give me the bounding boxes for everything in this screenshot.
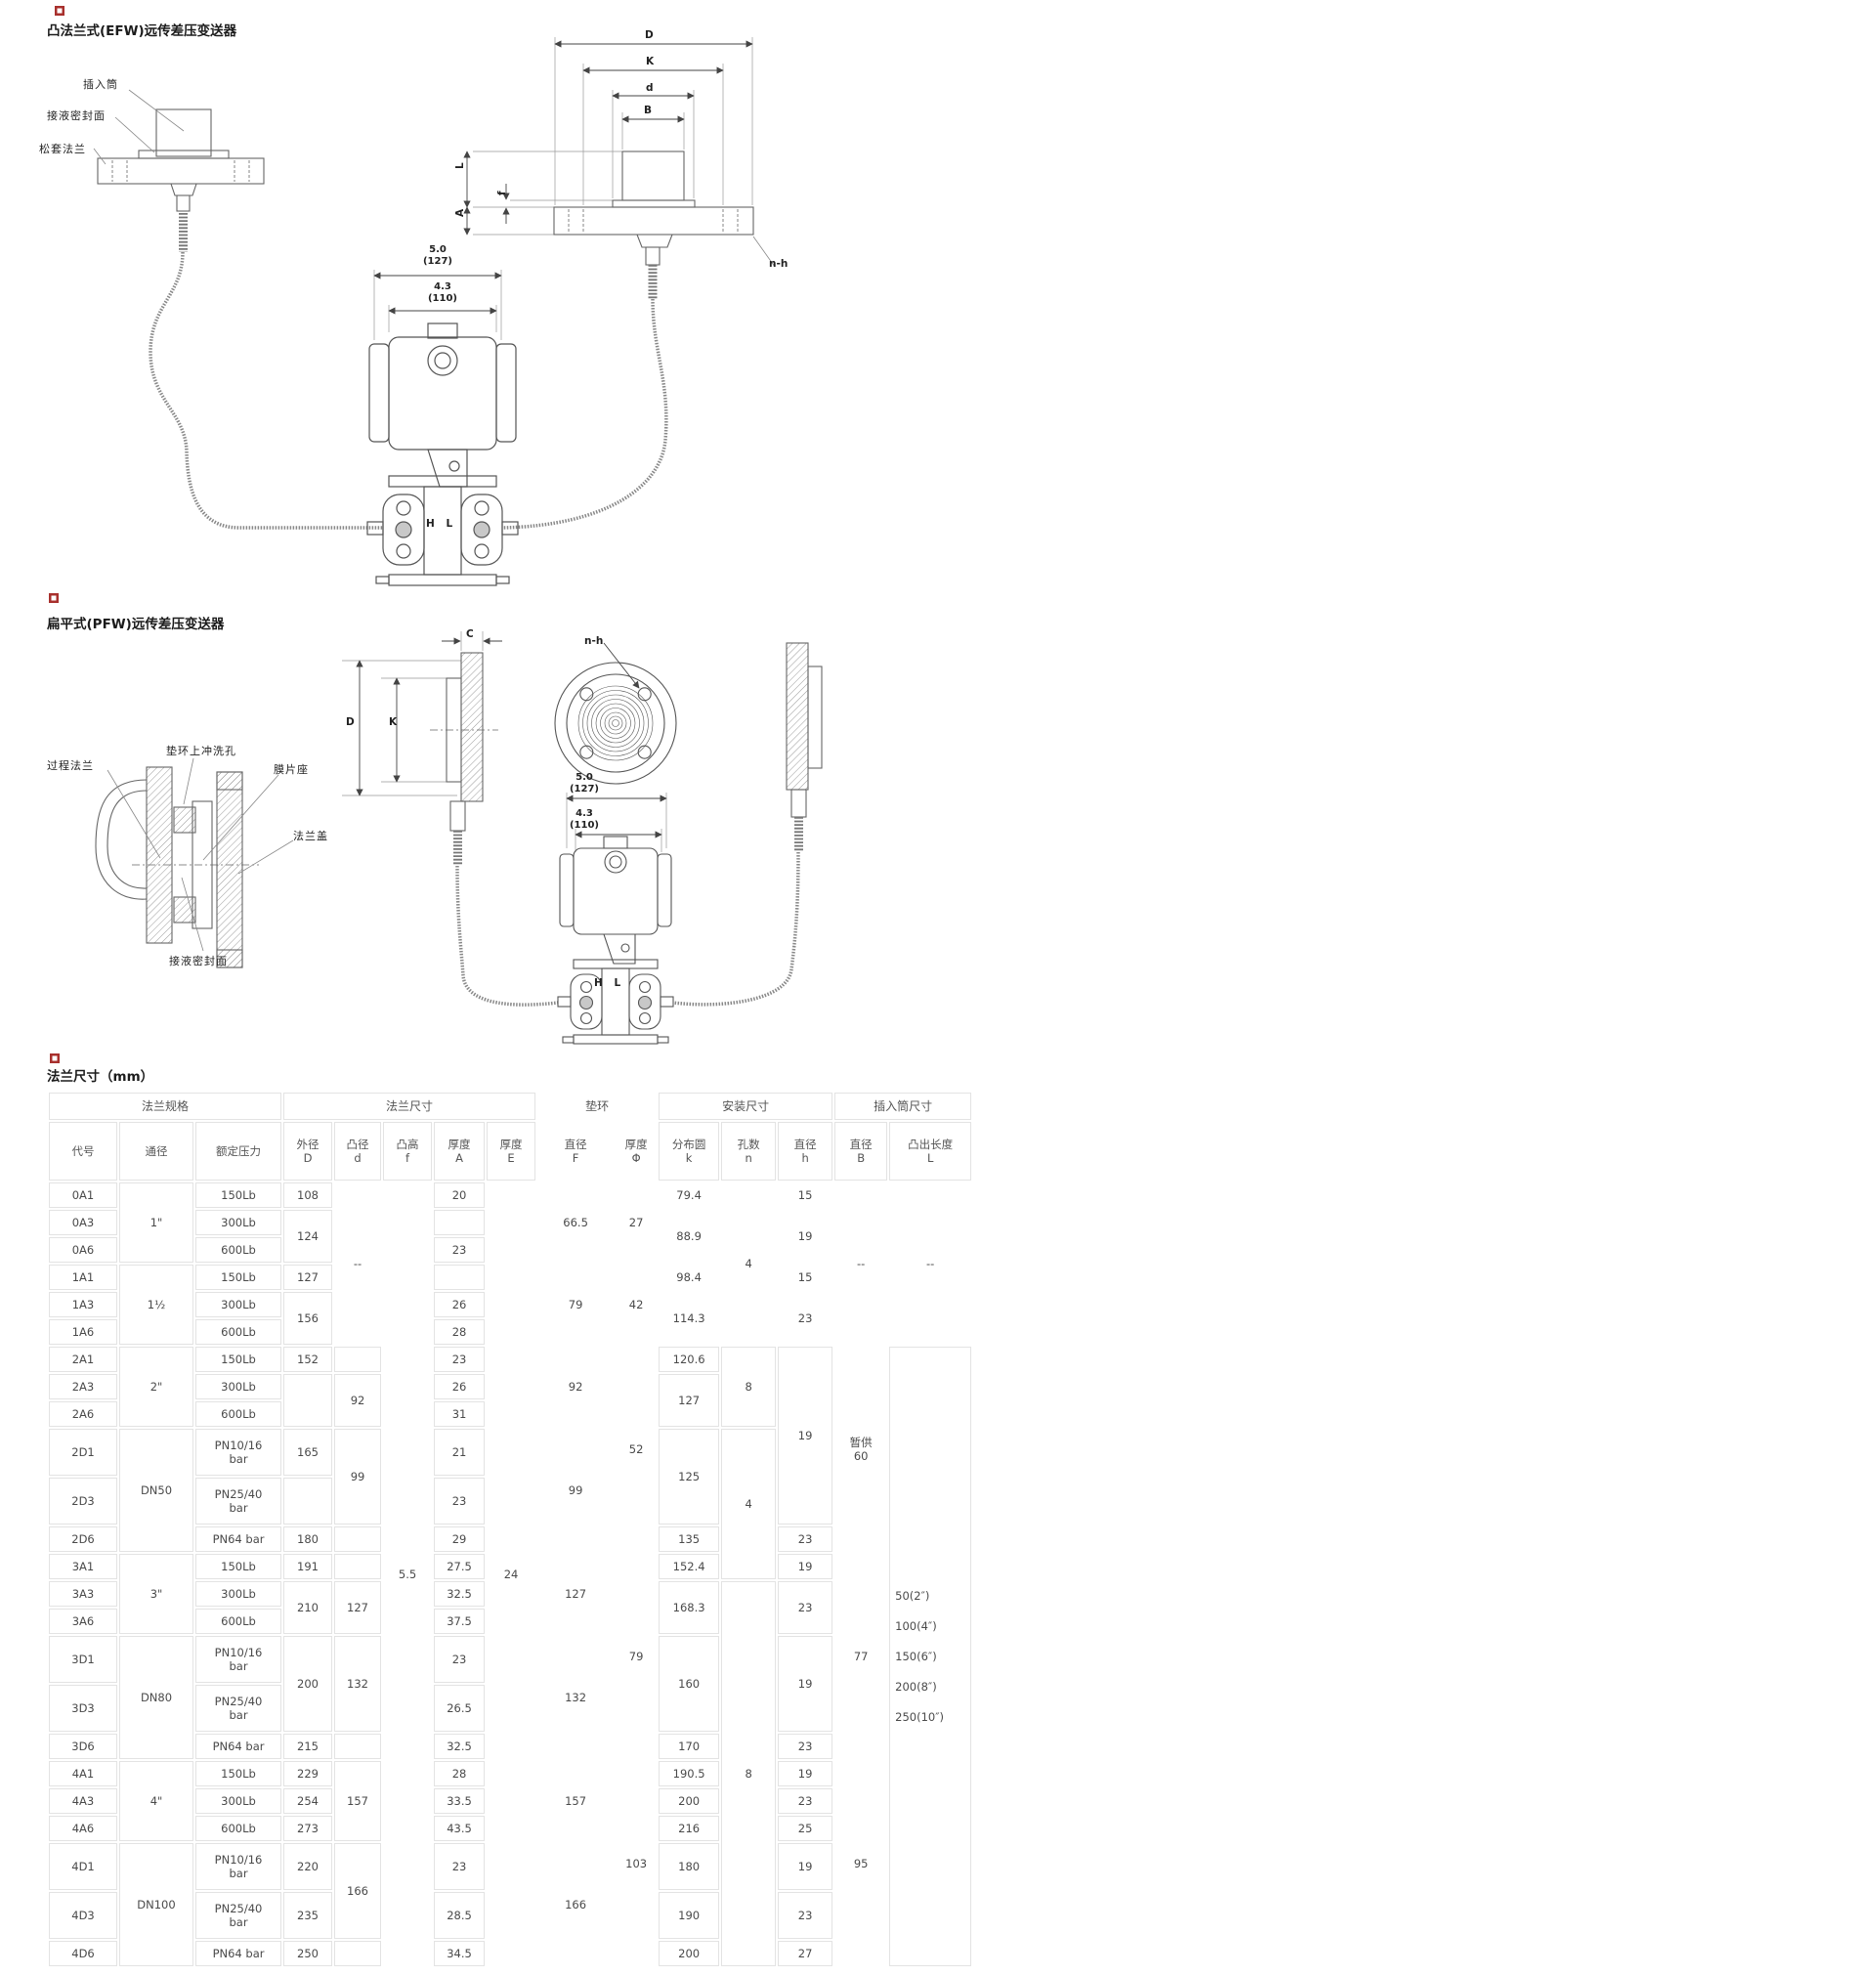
header-cell: 凸高 f xyxy=(383,1122,432,1181)
table-cell: 152 xyxy=(283,1347,332,1372)
table-cell xyxy=(434,1210,485,1235)
header-cell: 通径 xyxy=(119,1122,193,1181)
table-cell xyxy=(334,1941,381,1966)
table-cell: 200 xyxy=(659,1788,719,1814)
table-cell: 27 xyxy=(616,1182,657,1263)
table-cell: 26 xyxy=(434,1374,485,1399)
table-cell: 33.5 xyxy=(434,1788,485,1814)
header-cell: 外径 D xyxy=(283,1122,332,1181)
dim-label-L: L xyxy=(454,162,466,169)
table-cell: 52 xyxy=(616,1347,657,1552)
table-cell: 132 xyxy=(334,1636,381,1732)
table-cell: PN10/16 bar xyxy=(195,1429,281,1476)
table-cell: 8 xyxy=(721,1581,776,1966)
table-cell: 28 xyxy=(434,1761,485,1786)
table-cell: 229 xyxy=(283,1761,332,1786)
header-cell: 安装尺寸 xyxy=(659,1093,832,1120)
pfw-callout-flush-hole: 垫环上冲洗孔 xyxy=(166,743,236,758)
header-cell: 孔数 n xyxy=(721,1122,776,1181)
efw-dimension-view xyxy=(467,37,775,528)
table-cell: 250 xyxy=(283,1941,332,1966)
table-cell: PN25/40 bar xyxy=(195,1892,281,1939)
flange-dimensions-table: 法兰规格法兰尺寸垫环安装尺寸插入筒尺寸代号通径额定压力外径 D凸径 d凸高 f厚… xyxy=(47,1091,973,1968)
table-cell: 4 xyxy=(721,1182,776,1345)
header-cell: 直径 h xyxy=(778,1122,832,1181)
table-cell: 254 xyxy=(283,1788,332,1814)
table-cell: 1½ xyxy=(119,1265,193,1345)
table-cell: 200 xyxy=(283,1636,332,1732)
table-cell: 99 xyxy=(537,1429,614,1552)
table-cell: 152.4 xyxy=(659,1554,719,1579)
table-cell: 26.5 xyxy=(434,1685,485,1732)
header-cell: 法兰规格 xyxy=(49,1093,281,1120)
table-cell: 42 xyxy=(616,1265,657,1345)
table-cell: 19 xyxy=(778,1347,832,1525)
table-cell: 4" xyxy=(119,1761,193,1841)
header-cell: 直径 F xyxy=(537,1122,614,1181)
pfw-callout-flange-cover: 法兰盖 xyxy=(293,828,328,843)
dim-label-B: B xyxy=(644,105,652,116)
table-cell: 2A6 xyxy=(49,1401,117,1427)
table-cell: PN25/40 bar xyxy=(195,1478,281,1525)
table-cell: 600Lb xyxy=(195,1401,281,1427)
table-cell: 20 xyxy=(434,1182,485,1208)
table-cell xyxy=(334,1347,381,1372)
table-cell: 4A3 xyxy=(49,1788,117,1814)
table-cell: PN25/40 bar xyxy=(195,1685,281,1732)
header-cell: 直径 B xyxy=(834,1122,887,1181)
table-cell: 210 xyxy=(283,1581,332,1634)
table-cell: 600Lb xyxy=(195,1816,281,1841)
table-cell: 150Lb xyxy=(195,1182,281,1208)
table-cell: 29 xyxy=(434,1526,485,1552)
table-cell: 0A3 xyxy=(49,1210,117,1235)
table-cell: 19 xyxy=(778,1843,832,1890)
table-cell: 19 xyxy=(778,1761,832,1786)
dim-label-K2: K xyxy=(389,716,397,728)
pfw-callout-process-flange: 过程法兰 xyxy=(47,757,94,773)
table-cell xyxy=(334,1554,381,1579)
table-cell: 5.5 xyxy=(383,1182,432,1966)
table-cell: 3D1 xyxy=(49,1636,117,1683)
table-cell: 300Lb xyxy=(195,1788,281,1814)
header-cell: 分布圆 k xyxy=(659,1122,719,1181)
flange-table-body: 法兰规格法兰尺寸垫环安装尺寸插入筒尺寸代号通径额定压力外径 D凸径 d凸高 f厚… xyxy=(49,1093,971,1966)
table-cell: 235 xyxy=(283,1892,332,1939)
table-cell: 300Lb xyxy=(195,1210,281,1235)
table-cell: 215 xyxy=(283,1734,332,1759)
table-cell: 300Lb xyxy=(195,1581,281,1607)
table-cell: 32.5 xyxy=(434,1734,485,1759)
table-cell: -- xyxy=(834,1182,887,1345)
table-cell: DN50 xyxy=(119,1429,193,1552)
dim-label-f: f xyxy=(496,191,508,195)
table-cell: 3" xyxy=(119,1554,193,1634)
table-cell: PN10/16 bar xyxy=(195,1843,281,1890)
dim-label-A: A xyxy=(454,209,466,217)
table-cell: 27 xyxy=(778,1941,832,1966)
table-cell: 600Lb xyxy=(195,1237,281,1263)
pfw-right-flange xyxy=(673,643,822,1005)
table-cell: 3A6 xyxy=(49,1609,117,1634)
flange-table-title: 法兰尺寸（mm） xyxy=(47,1065,153,1085)
hl-marking-pfw: H L xyxy=(594,977,624,989)
table-cell: 1A3 xyxy=(49,1292,117,1317)
table-cell: 150Lb xyxy=(195,1761,281,1786)
table-cell: 88.9 xyxy=(659,1210,719,1263)
header-cell: 法兰尺寸 xyxy=(283,1093,535,1120)
table-cell: 220 xyxy=(283,1843,332,1890)
table-cell: 114.3 xyxy=(659,1292,719,1345)
table-cell: 150Lb xyxy=(195,1347,281,1372)
table-cell: 127 xyxy=(283,1265,332,1290)
table-cell: 157 xyxy=(537,1761,614,1841)
dim-label-n-h2: n-h xyxy=(584,635,603,647)
table-cell: DN80 xyxy=(119,1636,193,1759)
table-cell: 2A1 xyxy=(49,1347,117,1372)
efw-callout-insert-tube: 插入筒 xyxy=(83,76,118,92)
table-cell: 190 xyxy=(659,1892,719,1939)
table-cell: -- xyxy=(889,1182,971,1345)
table-cell: DN100 xyxy=(119,1843,193,1966)
table-cell xyxy=(434,1265,485,1290)
header-cell: 厚度 E xyxy=(487,1122,535,1181)
table-cell: 300Lb xyxy=(195,1292,281,1317)
efw-callout-loose-flange: 松套法兰 xyxy=(39,141,86,156)
table-cell: 168.3 xyxy=(659,1581,719,1634)
table-cell: 15 xyxy=(778,1182,832,1208)
table-cell: 31 xyxy=(434,1401,485,1427)
table-cell: 3D6 xyxy=(49,1734,117,1759)
table-cell xyxy=(334,1526,381,1552)
dim-label-n-h: n-h xyxy=(769,258,788,270)
table-cell xyxy=(283,1374,332,1427)
table-cell: 2" xyxy=(119,1347,193,1427)
table-cell: 127 xyxy=(334,1581,381,1634)
table-cell: 43.5 xyxy=(434,1816,485,1841)
dim-width-5-0: 5.0(127) xyxy=(408,244,467,268)
table-cell: 125 xyxy=(659,1429,719,1525)
table-cell: 23 xyxy=(434,1843,485,1890)
table-cell: 23 xyxy=(778,1581,832,1634)
table-cell: 0A1 xyxy=(49,1182,117,1208)
table-cell: 600Lb xyxy=(195,1609,281,1634)
table-cell: 37.5 xyxy=(434,1609,485,1634)
table-cell: 4 xyxy=(721,1429,776,1579)
table-cell: 28.5 xyxy=(434,1892,485,1939)
table-cell: 23 xyxy=(434,1347,485,1372)
table-cell xyxy=(334,1734,381,1759)
pfw-callout-diaphragm-seat: 膜片座 xyxy=(274,761,309,777)
hl-marking: H L xyxy=(426,518,456,530)
table-cell: 26 xyxy=(434,1292,485,1317)
table-cell: 170 xyxy=(659,1734,719,1759)
table-cell: 92 xyxy=(537,1347,614,1427)
table-cell: 4A6 xyxy=(49,1816,117,1841)
efw-diagram xyxy=(39,29,821,596)
dim-label-D: D xyxy=(645,29,654,41)
table-cell: 23 xyxy=(434,1478,485,1525)
dim-label-d: d xyxy=(646,82,654,94)
table-cell: 4D6 xyxy=(49,1941,117,1966)
table-cell: 4D3 xyxy=(49,1892,117,1939)
table-cell: PN64 bar xyxy=(195,1941,281,1966)
table-cell: 156 xyxy=(283,1292,332,1345)
pfw-callout-seal-face: 接液密封面 xyxy=(169,953,228,968)
section-bullet-icon xyxy=(55,6,64,16)
table-cell: 23 xyxy=(434,1636,485,1683)
table-cell: 600Lb xyxy=(195,1319,281,1345)
table-cell: 4A1 xyxy=(49,1761,117,1786)
table-cell: 19 xyxy=(778,1636,832,1732)
table-cell: 92 xyxy=(334,1374,381,1427)
header-cell: 凸径 d xyxy=(334,1122,381,1181)
table-cell: 135 xyxy=(659,1526,719,1552)
table-cell: 23 xyxy=(778,1526,832,1552)
table-cell: 3A1 xyxy=(49,1554,117,1579)
header-cell: 垫环 xyxy=(537,1093,657,1120)
table-cell: 2A3 xyxy=(49,1374,117,1399)
table-cell: 66.5 xyxy=(537,1182,614,1263)
table-cell: 暂供 60 xyxy=(834,1347,887,1552)
table-cell: 1A1 xyxy=(49,1265,117,1290)
dim-width-4-3-pfw: 4.3(110) xyxy=(555,808,614,832)
table-cell: 103 xyxy=(616,1761,657,1966)
table-cell: 2D1 xyxy=(49,1429,117,1476)
table-cell: 3A3 xyxy=(49,1581,117,1607)
table-row: 0A11"150Lb108--5.5202466.52779.4415---- xyxy=(49,1182,971,1208)
table-cell: 27.5 xyxy=(434,1554,485,1579)
table-cell: 166 xyxy=(537,1843,614,1966)
dim-width-4-3: 4.3(110) xyxy=(413,281,472,305)
table-cell: 108 xyxy=(283,1182,332,1208)
table-cell: 3D3 xyxy=(49,1685,117,1732)
table-cell: 8 xyxy=(721,1347,776,1427)
table-cell: 1A6 xyxy=(49,1319,117,1345)
table-cell: 23 xyxy=(778,1292,832,1345)
table-cell: 150Lb xyxy=(195,1265,281,1290)
header-cell: 厚度 A xyxy=(434,1122,485,1181)
table-cell: 157 xyxy=(334,1761,381,1841)
table-cell: 23 xyxy=(434,1237,485,1263)
table-cell: 0A6 xyxy=(49,1237,117,1263)
pfw-cross-section xyxy=(96,758,293,967)
table-cell: 1" xyxy=(119,1182,193,1263)
efw-transmitter xyxy=(367,270,518,585)
header-cell: 厚度 Φ xyxy=(616,1122,657,1181)
table-cell: 273 xyxy=(283,1816,332,1841)
efw-left-flange-assembly xyxy=(94,90,383,528)
table-cell xyxy=(283,1478,332,1525)
table-cell: 160 xyxy=(659,1636,719,1732)
header-cell: 插入筒尺寸 xyxy=(834,1093,971,1120)
table-cell: 28 xyxy=(434,1319,485,1345)
section-bullet-icon xyxy=(49,593,59,603)
table-cell: 24 xyxy=(487,1182,535,1966)
table-cell: 165 xyxy=(283,1429,332,1476)
table-cell: 180 xyxy=(659,1843,719,1890)
table-cell: 19 xyxy=(778,1554,832,1579)
efw-callout-seal-face: 接液密封面 xyxy=(47,107,106,123)
table-cell: 127 xyxy=(537,1554,614,1634)
header-cell: 额定压力 xyxy=(195,1122,281,1181)
table-cell: 99 xyxy=(334,1429,381,1525)
table-cell: 98.4 xyxy=(659,1265,719,1290)
table-cell: 34.5 xyxy=(434,1941,485,1966)
dim-width-5-0-pfw: 5.0(127) xyxy=(555,772,614,795)
table-cell: 120.6 xyxy=(659,1347,719,1372)
datasheet-page: 凸法兰式(EFW)远传差压变送器 xyxy=(0,0,1876,1976)
dim-label-C: C xyxy=(466,628,474,640)
table-cell: 23 xyxy=(778,1788,832,1814)
table-cell: 2D3 xyxy=(49,1478,117,1525)
table-cell: 23 xyxy=(778,1734,832,1759)
table-cell: PN64 bar xyxy=(195,1526,281,1552)
header-cell: 代号 xyxy=(49,1122,117,1181)
pfw-front-view xyxy=(555,643,676,784)
table-cell: PN10/16 bar xyxy=(195,1636,281,1683)
table-cell: 79.4 xyxy=(659,1182,719,1208)
table-cell: 50(2″) 100(4″) 150(6″) 200(8″) 250(10″) xyxy=(889,1347,971,1966)
table-cell: 4D1 xyxy=(49,1843,117,1890)
table-cell: 166 xyxy=(334,1843,381,1939)
table-cell: 77 xyxy=(834,1554,887,1759)
table-cell: 124 xyxy=(283,1210,332,1263)
table-cell: 150Lb xyxy=(195,1554,281,1579)
table-cell: -- xyxy=(334,1182,381,1345)
pfw-side-view xyxy=(342,631,558,1005)
table-cell: 95 xyxy=(834,1761,887,1966)
table-cell: 32.5 xyxy=(434,1581,485,1607)
header-cell: 凸出长度 L xyxy=(889,1122,971,1181)
table-cell: 21 xyxy=(434,1429,485,1476)
table-cell: 180 xyxy=(283,1526,332,1552)
dim-label-D2: D xyxy=(346,716,355,728)
table-cell: 191 xyxy=(283,1554,332,1579)
table-cell: 127 xyxy=(659,1374,719,1427)
table-cell: 23 xyxy=(778,1892,832,1939)
table-cell: 15 xyxy=(778,1265,832,1290)
table-cell: 19 xyxy=(778,1210,832,1263)
table-cell: 132 xyxy=(537,1636,614,1759)
table-cell: 300Lb xyxy=(195,1374,281,1399)
dim-label-K: K xyxy=(646,56,654,67)
table-cell: 25 xyxy=(778,1816,832,1841)
table-cell: 79 xyxy=(537,1265,614,1345)
table-cell: 200 xyxy=(659,1941,719,1966)
table-cell: 216 xyxy=(659,1816,719,1841)
table-cell: 190.5 xyxy=(659,1761,719,1786)
table-cell: 2D6 xyxy=(49,1526,117,1552)
table-cell: PN64 bar xyxy=(195,1734,281,1759)
table-cell: 79 xyxy=(616,1554,657,1759)
pfw-diagram xyxy=(39,616,860,1051)
section-bullet-icon xyxy=(50,1053,60,1063)
